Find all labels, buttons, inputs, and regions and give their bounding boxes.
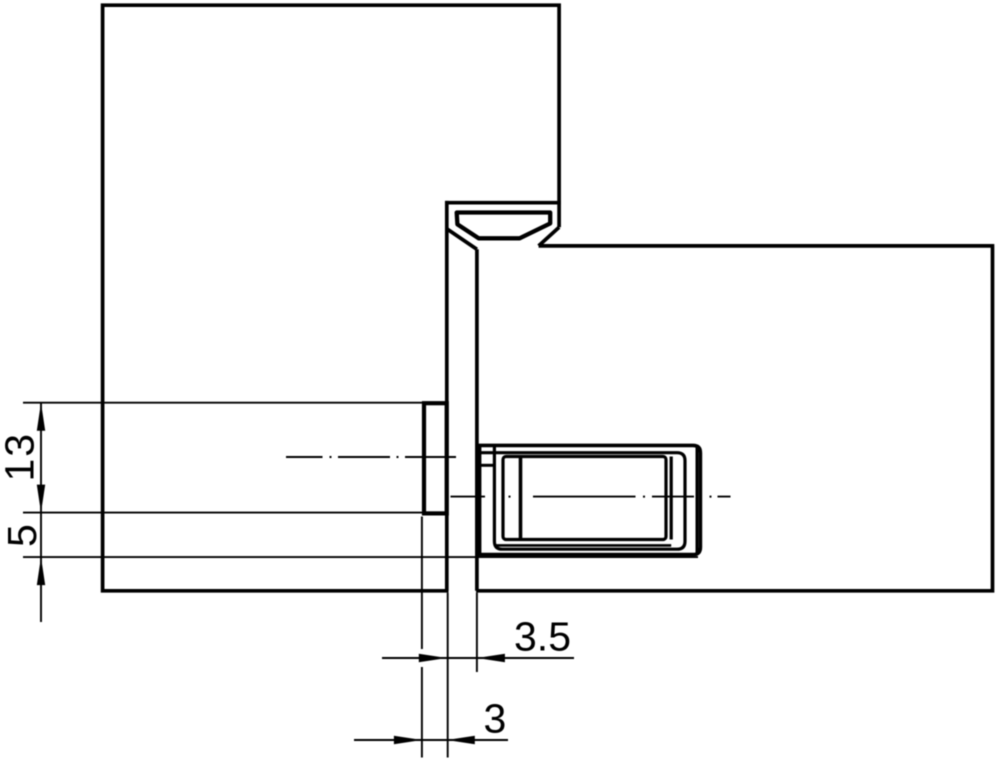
svg-text:3.5: 3.5 (514, 614, 571, 660)
svg-text:5: 5 (0, 524, 45, 547)
svg-text:13: 13 (0, 432, 43, 482)
svg-text:3: 3 (484, 696, 507, 742)
